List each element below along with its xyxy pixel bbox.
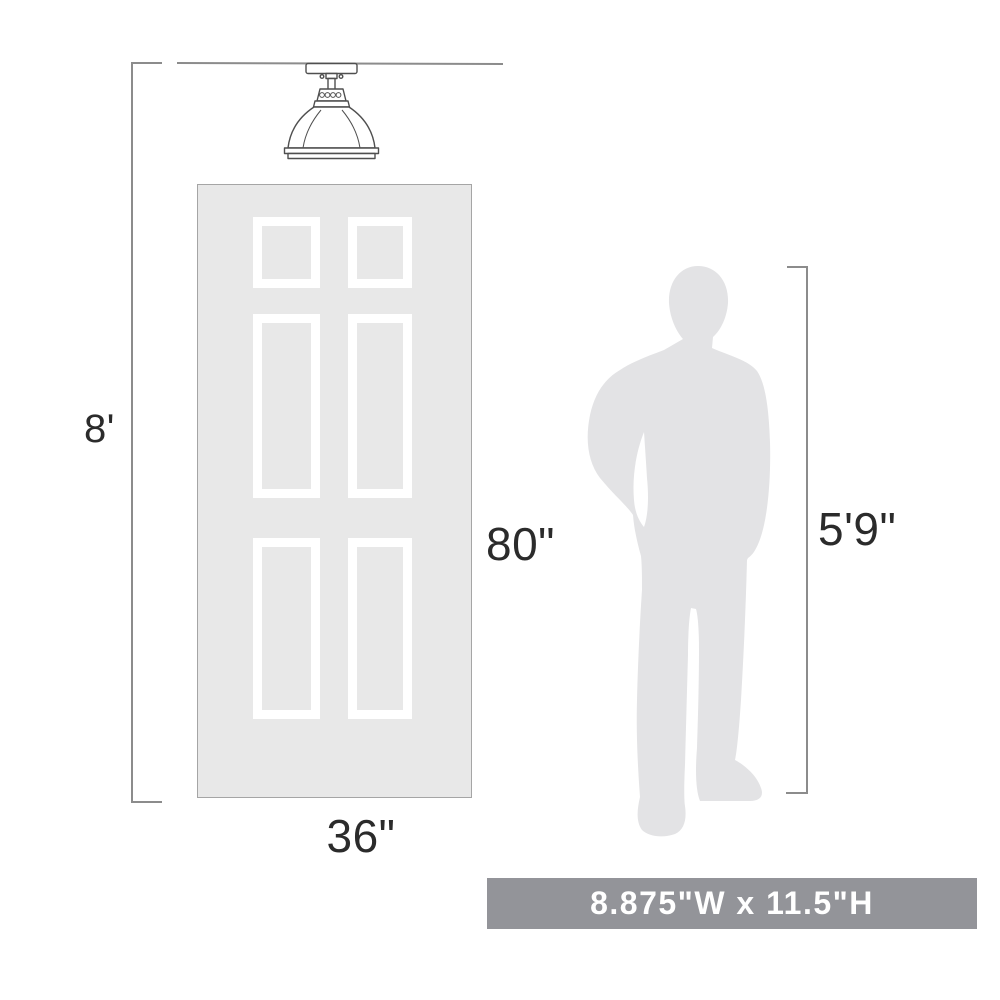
size-diagram: 8' 80" 36" 5'9" 8.875"W x 11.5"H bbox=[0, 0, 1000, 1000]
door-panel bbox=[253, 538, 320, 719]
door-panel bbox=[348, 314, 412, 498]
dimension-banner: 8.875"W x 11.5"H bbox=[487, 878, 977, 929]
door-height-label: 80" bbox=[486, 519, 555, 571]
door-graphic bbox=[197, 184, 472, 798]
person-height-bracket bbox=[786, 267, 807, 793]
person-silhouette bbox=[588, 266, 771, 836]
fixture-canopy bbox=[306, 64, 357, 74]
door-width-label: 36" bbox=[315, 811, 407, 863]
door-panel bbox=[348, 217, 412, 288]
dimension-banner-text: 8.875"W x 11.5"H bbox=[590, 885, 874, 922]
light-fixture-drawing bbox=[285, 64, 379, 159]
fixture-dome bbox=[288, 107, 375, 148]
diagram-linework bbox=[0, 0, 1000, 1000]
ceiling-height-bracket bbox=[132, 63, 162, 802]
person-height-label: 5'9" bbox=[818, 504, 896, 556]
ceiling-height-label: 8' bbox=[84, 407, 115, 452]
door-panel bbox=[253, 217, 320, 288]
door-panel bbox=[348, 538, 412, 719]
door-panel bbox=[253, 314, 320, 498]
